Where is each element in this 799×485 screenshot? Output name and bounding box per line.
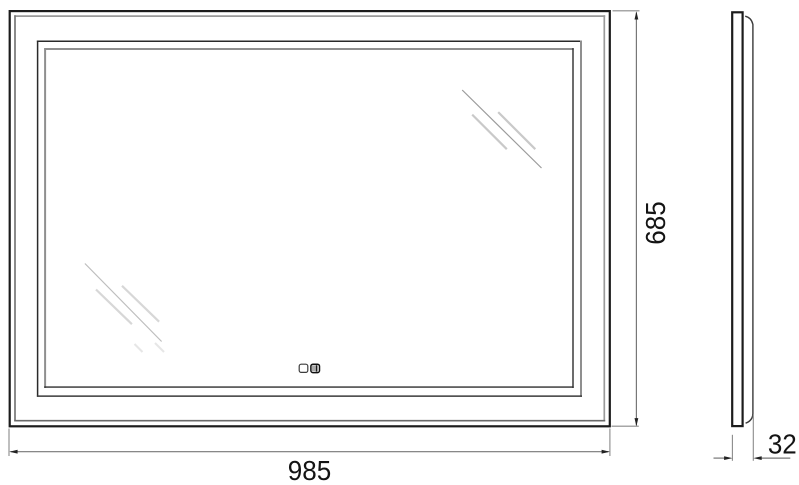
svg-text:685: 685 [640,201,671,244]
svg-text:32: 32 [768,429,797,460]
svg-text:985: 985 [288,455,331,485]
